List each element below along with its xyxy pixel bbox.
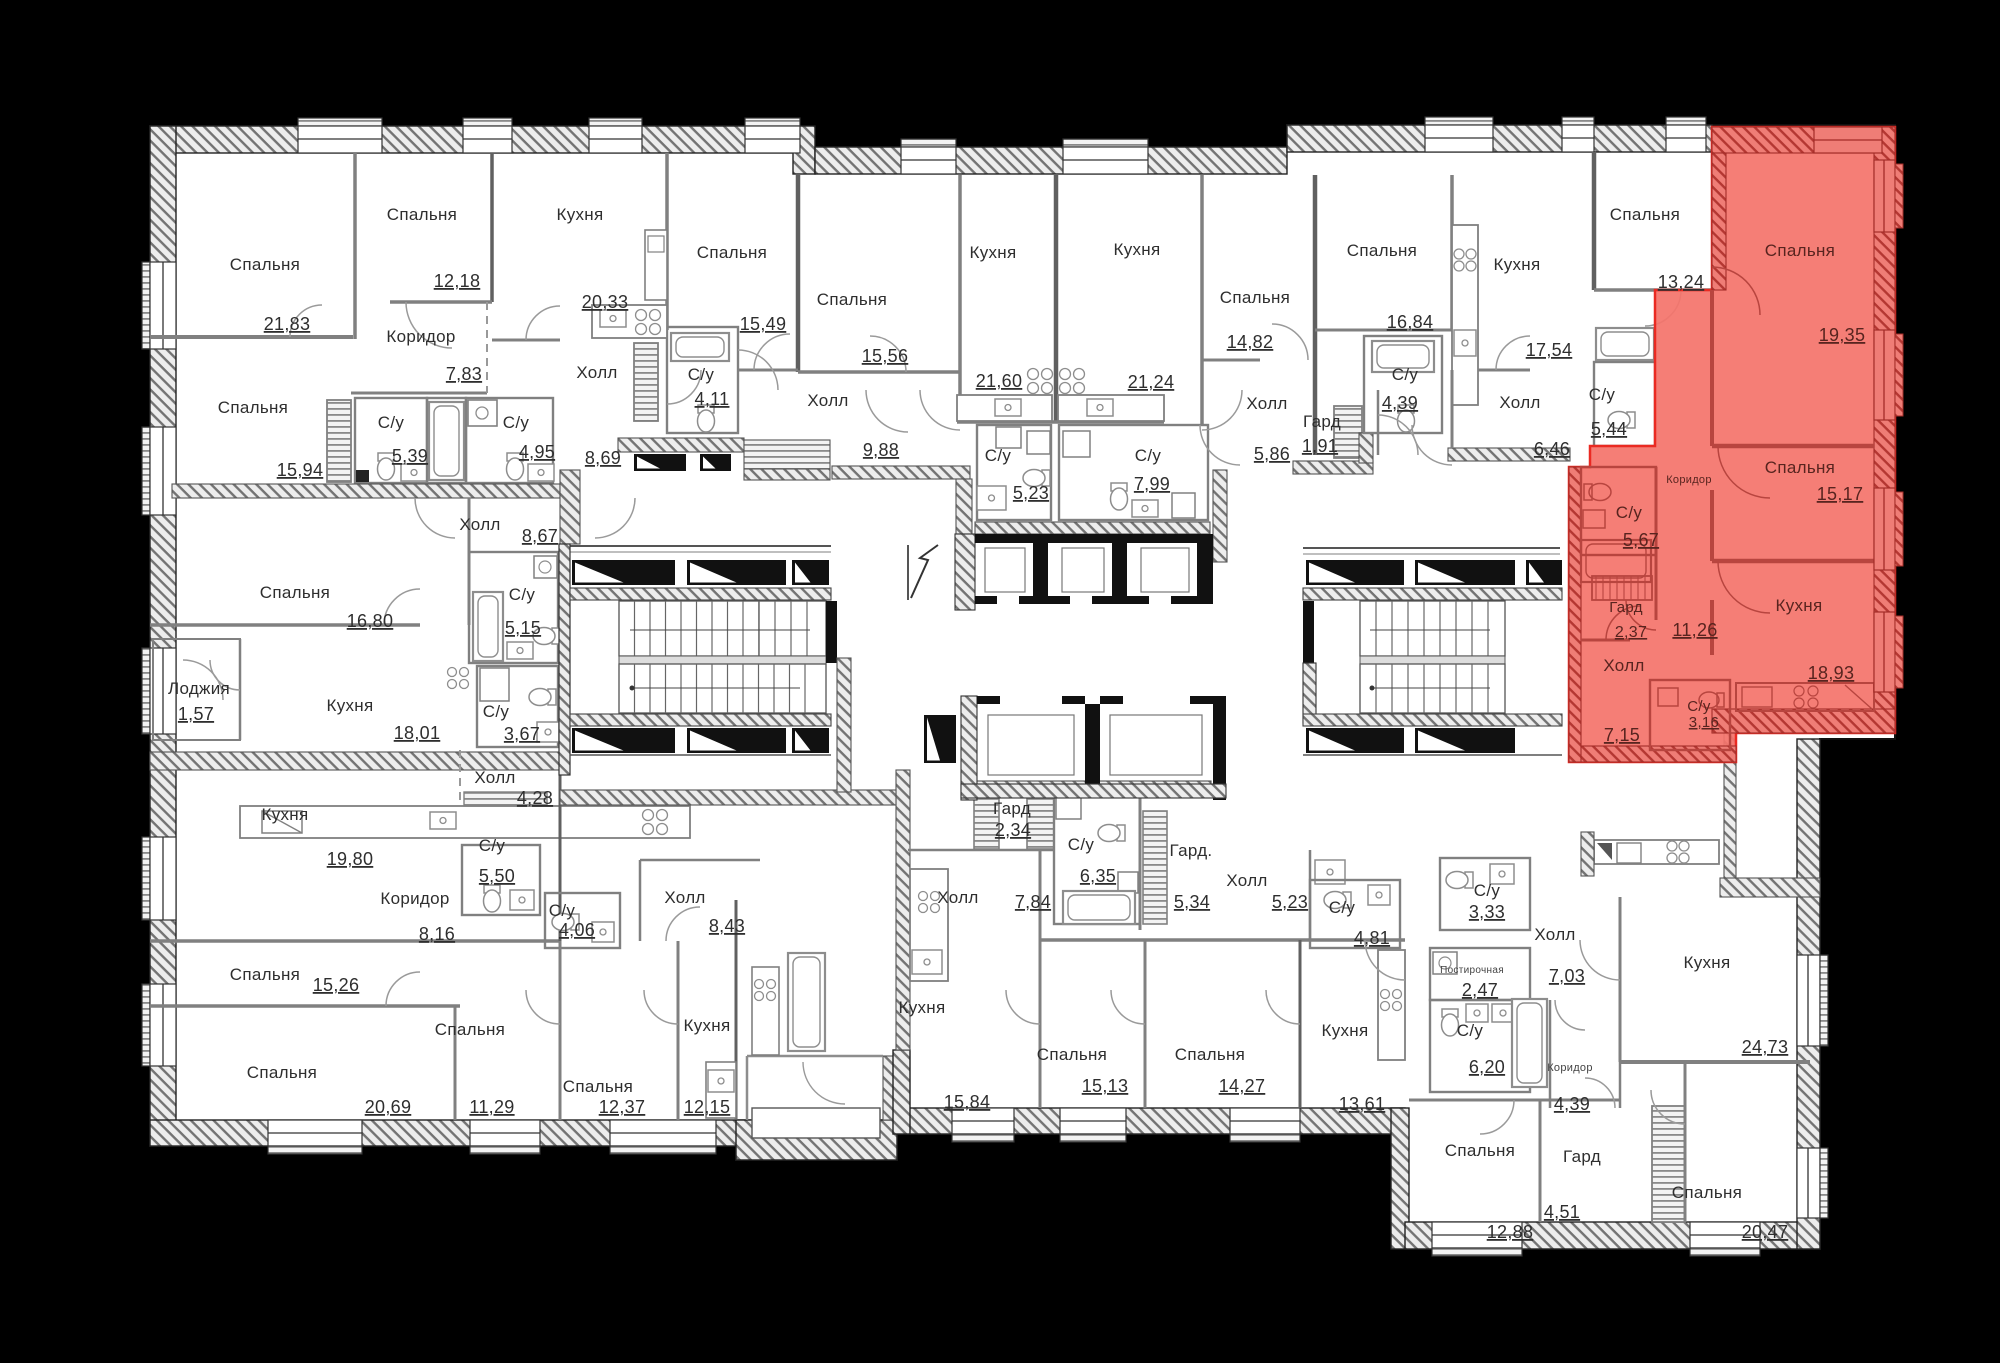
svg-text:7,99: 7,99 [1134, 474, 1170, 494]
svg-text:Спальня: Спальня [1037, 1045, 1107, 1064]
svg-text:Коридор: Коридор [1666, 474, 1712, 486]
svg-text:7,15: 7,15 [1604, 725, 1640, 745]
svg-text:15,56: 15,56 [862, 346, 909, 366]
svg-text:Лоджия: Лоджия [168, 679, 230, 698]
svg-text:5,15: 5,15 [505, 618, 541, 638]
svg-text:15,13: 15,13 [1082, 1076, 1129, 1096]
svg-text:Спальня: Спальня [1220, 288, 1290, 307]
svg-text:Спальня: Спальня [247, 1063, 317, 1082]
svg-text:13,61: 13,61 [1339, 1094, 1386, 1114]
svg-text:Спальня: Спальня [1672, 1183, 1742, 1202]
svg-text:Кухня: Кухня [1494, 255, 1541, 274]
svg-text:15,94: 15,94 [277, 460, 324, 480]
svg-text:2,37: 2,37 [1615, 624, 1647, 641]
svg-text:4,11: 4,11 [695, 389, 730, 409]
svg-text:Спальня: Спальня [817, 290, 887, 309]
svg-text:Холл: Холл [1499, 393, 1540, 412]
svg-text:15,84: 15,84 [944, 1092, 991, 1112]
svg-text:Спальня: Спальня [230, 965, 300, 984]
svg-text:Кухня: Кухня [557, 205, 604, 224]
svg-text:21,60: 21,60 [976, 371, 1023, 391]
svg-text:8,69: 8,69 [585, 448, 621, 468]
svg-text:12,37: 12,37 [599, 1097, 646, 1117]
svg-text:20,47: 20,47 [1742, 1222, 1789, 1242]
svg-text:18,93: 18,93 [1808, 663, 1855, 683]
svg-text:Спальня: Спальня [1765, 241, 1835, 260]
svg-text:14,27: 14,27 [1219, 1076, 1266, 1096]
svg-text:16,84: 16,84 [1387, 312, 1434, 332]
svg-text:12,88: 12,88 [1487, 1222, 1534, 1242]
svg-text:5,50: 5,50 [479, 866, 515, 886]
svg-text:С/у: С/у [1135, 446, 1162, 465]
svg-text:С/у: С/у [483, 702, 510, 721]
svg-text:Холл: Холл [459, 515, 500, 534]
svg-text:18,01: 18,01 [394, 723, 441, 743]
svg-text:С/у: С/у [509, 585, 536, 604]
svg-text:Спальня: Спальня [697, 243, 767, 262]
svg-text:Спальня: Спальня [1445, 1141, 1515, 1160]
svg-text:8,67: 8,67 [522, 526, 558, 546]
svg-text:12,15: 12,15 [684, 1097, 731, 1117]
svg-text:7,84: 7,84 [1015, 892, 1051, 912]
svg-text:8,43: 8,43 [709, 916, 745, 936]
svg-text:2,47: 2,47 [1462, 980, 1498, 1000]
svg-text:Коридор: Коридор [380, 889, 449, 908]
svg-text:19,80: 19,80 [327, 849, 374, 869]
svg-text:21,24: 21,24 [1128, 372, 1175, 392]
svg-text:Холл: Холл [1226, 871, 1267, 890]
svg-text:Холл: Холл [576, 363, 617, 382]
svg-text:С/у: С/у [1392, 365, 1419, 384]
svg-text:16,80: 16,80 [347, 611, 394, 631]
svg-text:5,23: 5,23 [1013, 483, 1049, 503]
svg-text:С/у: С/у [1616, 503, 1643, 522]
svg-text:Спальня: Спальня [1347, 241, 1417, 260]
svg-text:13,24: 13,24 [1658, 272, 1705, 292]
svg-text:Холл: Холл [807, 391, 848, 410]
svg-text:Спальня: Спальня [563, 1077, 633, 1096]
svg-text:5,34: 5,34 [1174, 892, 1210, 912]
svg-text:Гард.: Гард. [1170, 841, 1213, 860]
svg-text:5,23: 5,23 [1272, 892, 1308, 912]
svg-text:20,33: 20,33 [582, 292, 629, 312]
svg-text:Спальня: Спальня [218, 398, 288, 417]
svg-text:Кухня: Кухня [1322, 1021, 1369, 1040]
svg-text:С/у: С/у [985, 446, 1012, 465]
svg-text:Спальня: Спальня [1175, 1045, 1245, 1064]
svg-text:3,16: 3,16 [1689, 714, 1719, 731]
svg-text:С/у: С/у [1457, 1021, 1484, 1040]
svg-text:Кухня: Кухня [1776, 596, 1823, 615]
svg-text:Постирочная: Постирочная [1440, 965, 1504, 976]
svg-text:5,39: 5,39 [392, 446, 428, 466]
svg-text:Кухня: Кухня [684, 1016, 731, 1035]
svg-text:Холл: Холл [1246, 394, 1287, 413]
svg-text:Гард: Гард [1303, 412, 1341, 431]
svg-text:20,69: 20,69 [365, 1097, 412, 1117]
svg-text:6,20: 6,20 [1469, 1057, 1505, 1077]
svg-text:4,51: 4,51 [1544, 1202, 1580, 1222]
svg-text:С/у: С/у [1329, 898, 1356, 917]
svg-text:6,35: 6,35 [1080, 866, 1116, 886]
svg-text:19,35: 19,35 [1819, 325, 1866, 345]
svg-text:2,34: 2,34 [995, 820, 1031, 840]
svg-text:С/у: С/у [688, 365, 715, 384]
svg-text:4,39: 4,39 [1382, 393, 1418, 413]
svg-text:Кухня: Кухня [327, 696, 374, 715]
svg-text:4,06: 4,06 [559, 920, 595, 940]
svg-text:11,26: 11,26 [1672, 620, 1717, 640]
svg-text:17,54: 17,54 [1526, 340, 1573, 360]
svg-text:С/у: С/у [479, 836, 506, 855]
svg-text:Спальня: Спальня [260, 583, 330, 602]
svg-text:С/у: С/у [1687, 698, 1711, 715]
svg-text:С/у: С/у [503, 413, 530, 432]
svg-text:1,91: 1,91 [1302, 436, 1338, 456]
svg-text:Холл: Холл [1603, 656, 1644, 675]
svg-text:Кухня: Кухня [262, 805, 309, 824]
svg-text:21,83: 21,83 [264, 314, 311, 334]
svg-text:4,28: 4,28 [517, 788, 553, 808]
svg-text:15,17: 15,17 [1817, 484, 1864, 504]
svg-text:5,67: 5,67 [1623, 530, 1659, 550]
svg-text:Гард: Гард [1609, 599, 1643, 616]
svg-text:Холл: Холл [474, 768, 515, 787]
svg-text:5,86: 5,86 [1254, 444, 1290, 464]
svg-text:Холл: Холл [664, 888, 705, 907]
svg-text:7,03: 7,03 [1549, 966, 1585, 986]
svg-text:1,57: 1,57 [178, 704, 214, 724]
svg-text:3,33: 3,33 [1469, 902, 1505, 922]
svg-text:5,44: 5,44 [1591, 419, 1627, 439]
svg-text:14,82: 14,82 [1227, 332, 1274, 352]
svg-text:Коридор: Коридор [386, 327, 455, 346]
svg-text:С/у: С/у [378, 413, 405, 432]
svg-text:Гард: Гард [993, 799, 1031, 818]
svg-text:4,95: 4,95 [519, 442, 555, 462]
svg-text:С/у: С/у [549, 901, 576, 920]
svg-text:15,49: 15,49 [740, 314, 787, 334]
svg-text:С/у: С/у [1068, 835, 1095, 854]
svg-text:Кухня: Кухня [970, 243, 1017, 262]
svg-text:С/у: С/у [1589, 385, 1616, 404]
svg-text:7,83: 7,83 [446, 364, 482, 384]
svg-text:3,67: 3,67 [504, 724, 540, 744]
svg-text:9,88: 9,88 [863, 440, 899, 460]
svg-text:Кухня: Кухня [1114, 240, 1161, 259]
svg-text:Кухня: Кухня [1684, 953, 1731, 972]
svg-text:Спальня: Спальня [1610, 205, 1680, 224]
svg-text:24,73: 24,73 [1742, 1037, 1789, 1057]
svg-text:8,16: 8,16 [419, 924, 455, 944]
svg-text:6,46: 6,46 [1534, 439, 1570, 459]
svg-text:Гард: Гард [1563, 1147, 1601, 1166]
svg-text:С/у: С/у [1474, 881, 1501, 900]
svg-text:4,81: 4,81 [1354, 928, 1390, 948]
svg-text:4,39: 4,39 [1554, 1094, 1590, 1114]
svg-text:15,26: 15,26 [313, 975, 360, 995]
svg-text:Спальня: Спальня [230, 255, 300, 274]
svg-text:Коридор: Коридор [1547, 1062, 1593, 1074]
svg-text:11,29: 11,29 [469, 1097, 514, 1117]
svg-text:Холл: Холл [937, 888, 978, 907]
svg-text:Спальня: Спальня [1765, 458, 1835, 477]
svg-text:12,18: 12,18 [434, 271, 481, 291]
svg-text:Кухня: Кухня [899, 998, 946, 1017]
svg-text:Холл: Холл [1534, 925, 1575, 944]
svg-text:Спальня: Спальня [387, 205, 457, 224]
svg-text:Спальня: Спальня [435, 1020, 505, 1039]
